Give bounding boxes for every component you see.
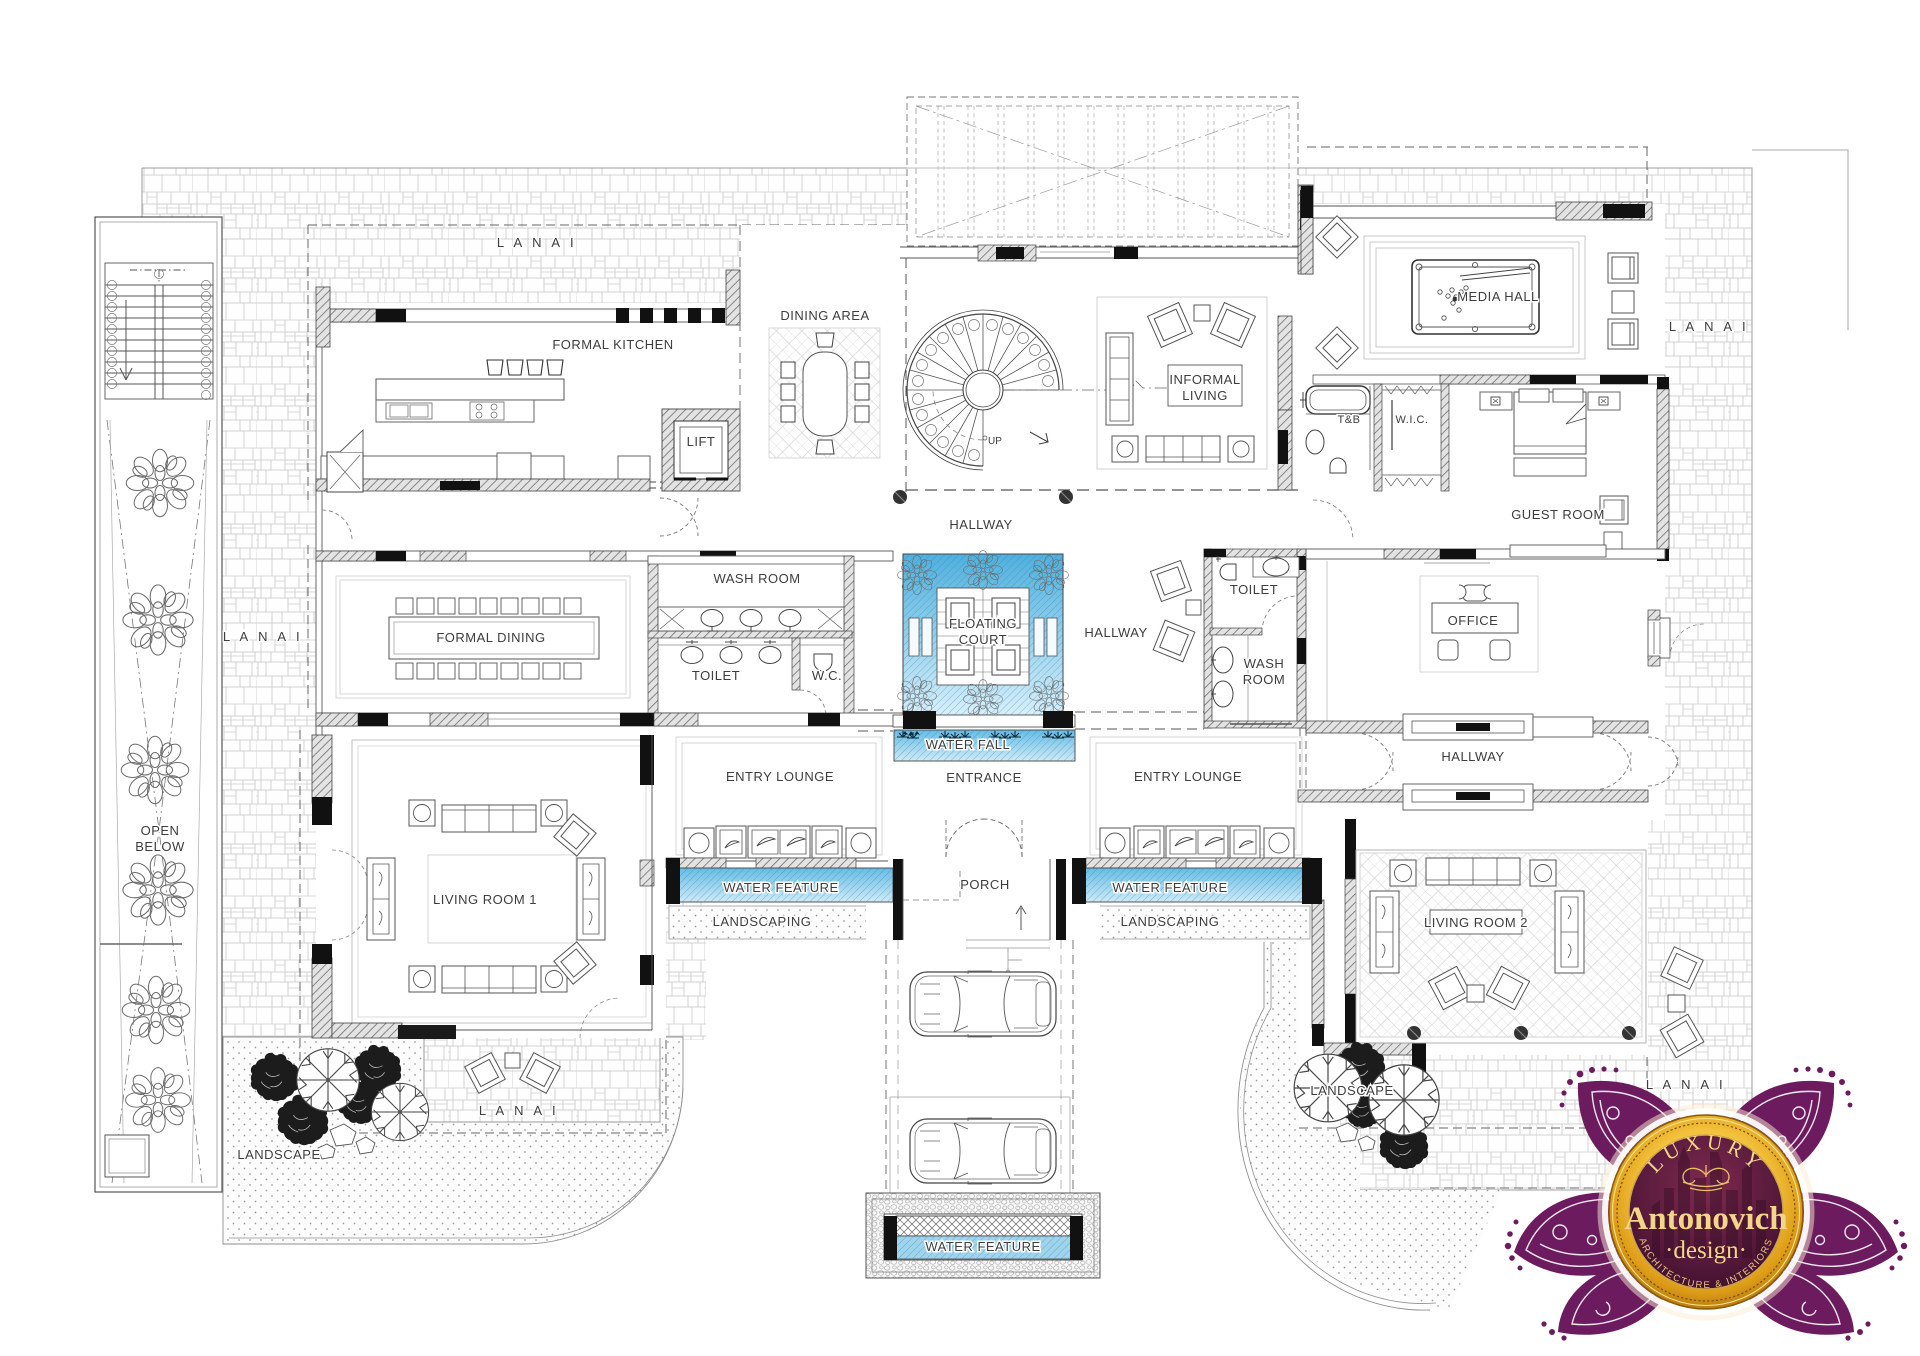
svg-text:UP: UP xyxy=(988,436,1002,447)
svg-text:W.I.C.: W.I.C. xyxy=(1396,414,1429,426)
svg-text:WASH: WASH xyxy=(1244,656,1285,671)
svg-text:·design·: ·design· xyxy=(1665,1237,1747,1264)
svg-text:DINING AREA: DINING AREA xyxy=(780,308,869,323)
svg-text:ROOM: ROOM xyxy=(1243,672,1285,687)
svg-text:LANDSCAPING: LANDSCAPING xyxy=(1121,914,1220,929)
svg-text:GUEST ROOM: GUEST ROOM xyxy=(1511,507,1605,522)
svg-text:LANDSCAPE: LANDSCAPE xyxy=(237,1147,320,1162)
svg-text:TOILET: TOILET xyxy=(1230,582,1278,597)
svg-text:COURT: COURT xyxy=(959,632,1007,647)
svg-text:ENTRY LOUNGE: ENTRY LOUNGE xyxy=(726,769,834,784)
svg-text:HALLWAY: HALLWAY xyxy=(1441,749,1504,764)
svg-text:FORMAL DINING: FORMAL DINING xyxy=(436,630,545,645)
svg-text:OFFICE: OFFICE xyxy=(1448,613,1499,628)
svg-text:PORCH: PORCH xyxy=(960,877,1009,892)
svg-text:WATER FEATURE: WATER FEATURE xyxy=(925,1239,1040,1254)
svg-text:L A N A I: L A N A I xyxy=(223,629,303,644)
svg-text:L A N A I: L A N A I xyxy=(1646,1077,1726,1092)
svg-text:HALLWAY: HALLWAY xyxy=(949,517,1012,532)
svg-text:INFORMAL: INFORMAL xyxy=(1169,372,1240,387)
svg-text:LANDSCAPING: LANDSCAPING xyxy=(713,914,812,929)
svg-text:WATER FEATURE: WATER FEATURE xyxy=(1112,880,1227,895)
svg-text:L A N A I: L A N A I xyxy=(497,235,577,250)
svg-text:OPEN: OPEN xyxy=(141,823,180,838)
svg-text:FORMAL KITCHEN: FORMAL KITCHEN xyxy=(552,337,673,352)
svg-text:L A N A I: L A N A I xyxy=(1669,319,1749,334)
svg-text:LANDSCAPE: LANDSCAPE xyxy=(1310,1083,1393,1098)
svg-text:T&B: T&B xyxy=(1338,414,1361,426)
svg-text:L A N A I: L A N A I xyxy=(479,1103,559,1118)
svg-text:ENTRANCE: ENTRANCE xyxy=(946,770,1022,785)
svg-text:FLOATING: FLOATING xyxy=(949,616,1017,631)
svg-text:WASH ROOM: WASH ROOM xyxy=(713,571,800,586)
svg-text:MEDIA HALL: MEDIA HALL xyxy=(1457,289,1539,304)
svg-text:LIVING: LIVING xyxy=(1182,388,1228,403)
svg-text:LIVING ROOM 2: LIVING ROOM 2 xyxy=(1424,915,1528,930)
svg-text:ENTRY LOUNGE: ENTRY LOUNGE xyxy=(1134,769,1242,784)
svg-text:LIFT: LIFT xyxy=(687,434,716,449)
svg-text:W.C.: W.C. xyxy=(812,668,842,683)
svg-text:LIVING ROOM 1: LIVING ROOM 1 xyxy=(433,892,537,907)
svg-text:Antonovich: Antonovich xyxy=(1624,1201,1787,1237)
svg-text:WATER FEATURE: WATER FEATURE xyxy=(723,880,838,895)
svg-text:WATER FALL: WATER FALL xyxy=(926,737,1010,752)
svg-text:TOILET: TOILET xyxy=(692,668,740,683)
svg-text:HALLWAY: HALLWAY xyxy=(1084,625,1147,640)
svg-text:BELOW: BELOW xyxy=(135,839,185,854)
